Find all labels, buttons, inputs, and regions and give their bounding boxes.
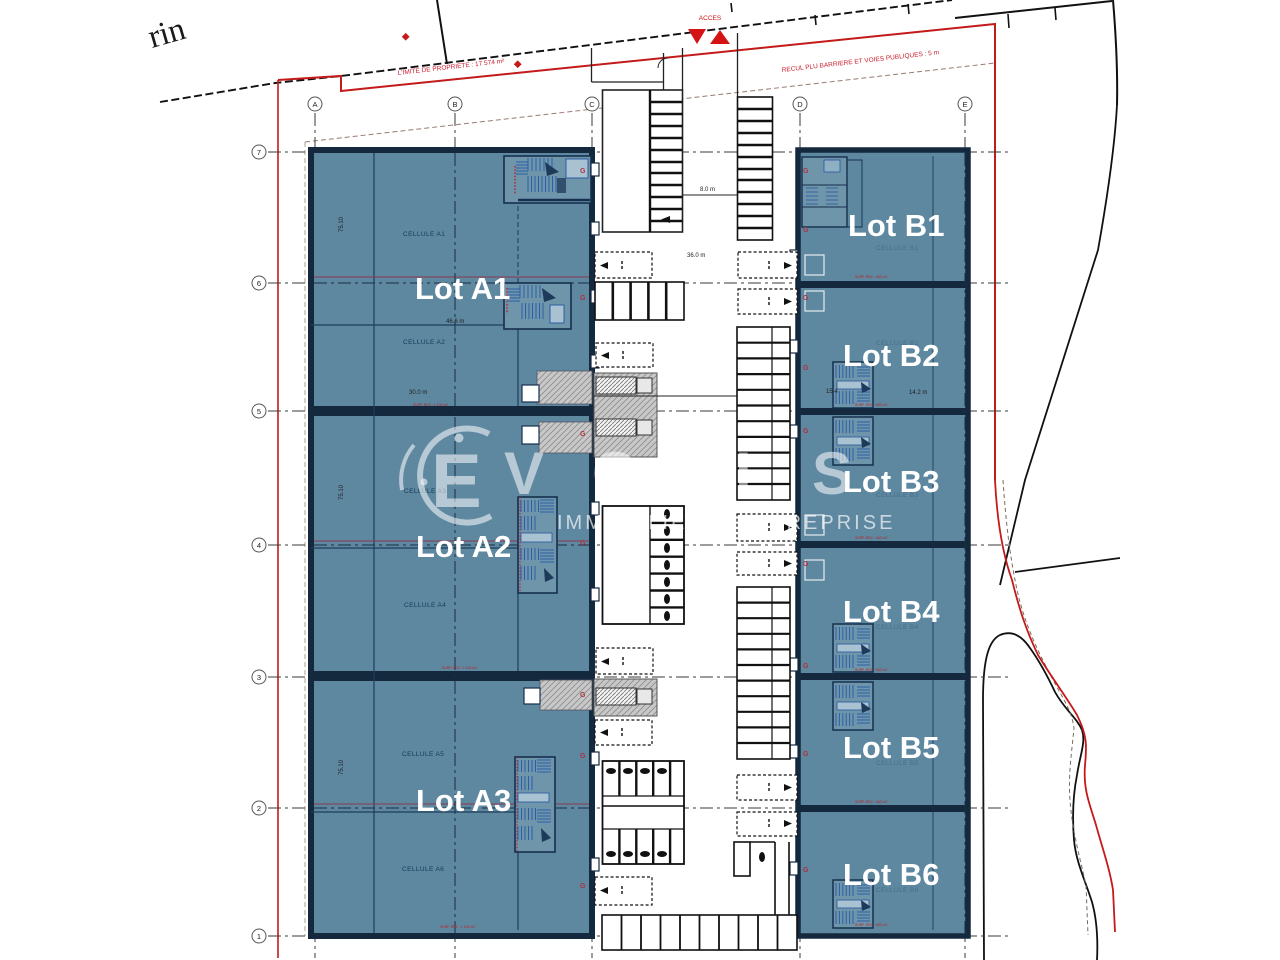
svg-text:SURF. RDC : 662 m2: SURF. RDC : 662 m2 bbox=[855, 800, 887, 804]
svg-text:G: G bbox=[580, 753, 586, 760]
svg-text:G: G bbox=[803, 663, 809, 670]
svg-text:8.0 m: 8.0 m bbox=[700, 187, 715, 193]
svg-text:ACCES: ACCES bbox=[699, 15, 722, 22]
svg-text:SURF. RDC : 662 m2: SURF. RDC : 662 m2 bbox=[855, 403, 887, 407]
svg-text:Lot B6: Lot B6 bbox=[843, 857, 939, 892]
svg-text:G: G bbox=[803, 365, 809, 372]
svg-text:A: A bbox=[312, 100, 317, 109]
svg-text:36.0 m: 36.0 m bbox=[687, 253, 705, 259]
svg-text:D: D bbox=[797, 100, 803, 109]
svg-text:SURF. RDC : 1 100 m2: SURF. RDC : 1 100 m2 bbox=[413, 403, 448, 407]
svg-text:S: S bbox=[812, 440, 852, 507]
svg-text:15.4: 15.4 bbox=[826, 389, 838, 395]
svg-text:75.10: 75.10 bbox=[339, 759, 345, 775]
svg-text:CELLULE A1: CELLULE A1 bbox=[403, 231, 445, 238]
svg-text:G: G bbox=[580, 883, 586, 890]
svg-text:G: G bbox=[580, 540, 586, 547]
svg-text:Lot A2: Lot A2 bbox=[416, 529, 511, 564]
svg-text:CELLULE B1: CELLULE B1 bbox=[876, 245, 919, 252]
svg-text:G: G bbox=[803, 751, 809, 758]
svg-text:5: 5 bbox=[257, 407, 261, 416]
svg-text:Lot B3: Lot B3 bbox=[843, 464, 939, 499]
svg-text:C: C bbox=[589, 100, 595, 109]
svg-text:4: 4 bbox=[257, 541, 261, 550]
svg-text:G: G bbox=[580, 692, 586, 699]
svg-text:G: G bbox=[803, 295, 809, 302]
svg-text:14.2 m: 14.2 m bbox=[909, 390, 927, 396]
svg-text:O: O bbox=[592, 440, 639, 507]
svg-text:G: G bbox=[580, 168, 586, 175]
svg-text:SURF. RDC : 662 m2: SURF. RDC : 662 m2 bbox=[855, 536, 887, 540]
svg-text:G: G bbox=[803, 428, 809, 435]
svg-text:V: V bbox=[504, 440, 544, 507]
svg-text:SURF. RDC : 1 100 m2: SURF. RDC : 1 100 m2 bbox=[440, 925, 475, 929]
svg-text:G: G bbox=[803, 227, 809, 234]
svg-text:L: L bbox=[658, 440, 695, 507]
svg-text:G: G bbox=[803, 561, 809, 568]
svg-text:SURF. RDC : 662 m2: SURF. RDC : 662 m2 bbox=[855, 668, 887, 672]
svg-text:G: G bbox=[803, 867, 809, 874]
svg-text:I: I bbox=[735, 440, 752, 507]
svg-text:Lot B5: Lot B5 bbox=[843, 730, 939, 765]
svg-text:46.6 m: 46.6 m bbox=[446, 319, 464, 325]
svg-text:75.10: 75.10 bbox=[339, 484, 345, 500]
svg-text:CELLULE A2: CELLULE A2 bbox=[403, 339, 445, 346]
svg-text:1: 1 bbox=[257, 932, 261, 941]
svg-text:Lot B1: Lot B1 bbox=[848, 208, 944, 243]
svg-text:75.10: 75.10 bbox=[339, 216, 345, 232]
svg-text:B: B bbox=[452, 100, 457, 109]
svg-text:SURF. RDC : 662 m2: SURF. RDC : 662 m2 bbox=[855, 923, 887, 927]
svg-text:7: 7 bbox=[257, 148, 261, 157]
svg-text:SURF. RDC : 662 m2: SURF. RDC : 662 m2 bbox=[855, 275, 887, 279]
svg-text:E: E bbox=[962, 100, 967, 109]
svg-text:CELLULE A6: CELLULE A6 bbox=[402, 866, 444, 873]
svg-text:CELLULE A5: CELLULE A5 bbox=[402, 751, 444, 758]
svg-text:G: G bbox=[580, 295, 586, 302]
svg-text:G: G bbox=[803, 168, 809, 175]
svg-text:Lot B4: Lot B4 bbox=[843, 594, 940, 629]
svg-text:3: 3 bbox=[257, 673, 261, 682]
svg-text:IMMOBILIER D'ENTREPRISE: IMMOBILIER D'ENTREPRISE bbox=[557, 512, 895, 534]
svg-text:SURF. RDC : 1 100 m2: SURF. RDC : 1 100 m2 bbox=[442, 666, 477, 670]
svg-text:CELLULE A4: CELLULE A4 bbox=[404, 602, 446, 609]
svg-text:6: 6 bbox=[257, 279, 261, 288]
svg-text:Lot B2: Lot B2 bbox=[843, 338, 939, 373]
svg-text:30.0 m: 30.0 m bbox=[409, 390, 427, 396]
svg-text:2: 2 bbox=[257, 804, 261, 813]
svg-text:G: G bbox=[580, 431, 586, 438]
svg-text:Lot A1: Lot A1 bbox=[415, 271, 510, 306]
svg-text:Lot A3: Lot A3 bbox=[416, 783, 511, 818]
svg-text:E: E bbox=[431, 439, 482, 524]
